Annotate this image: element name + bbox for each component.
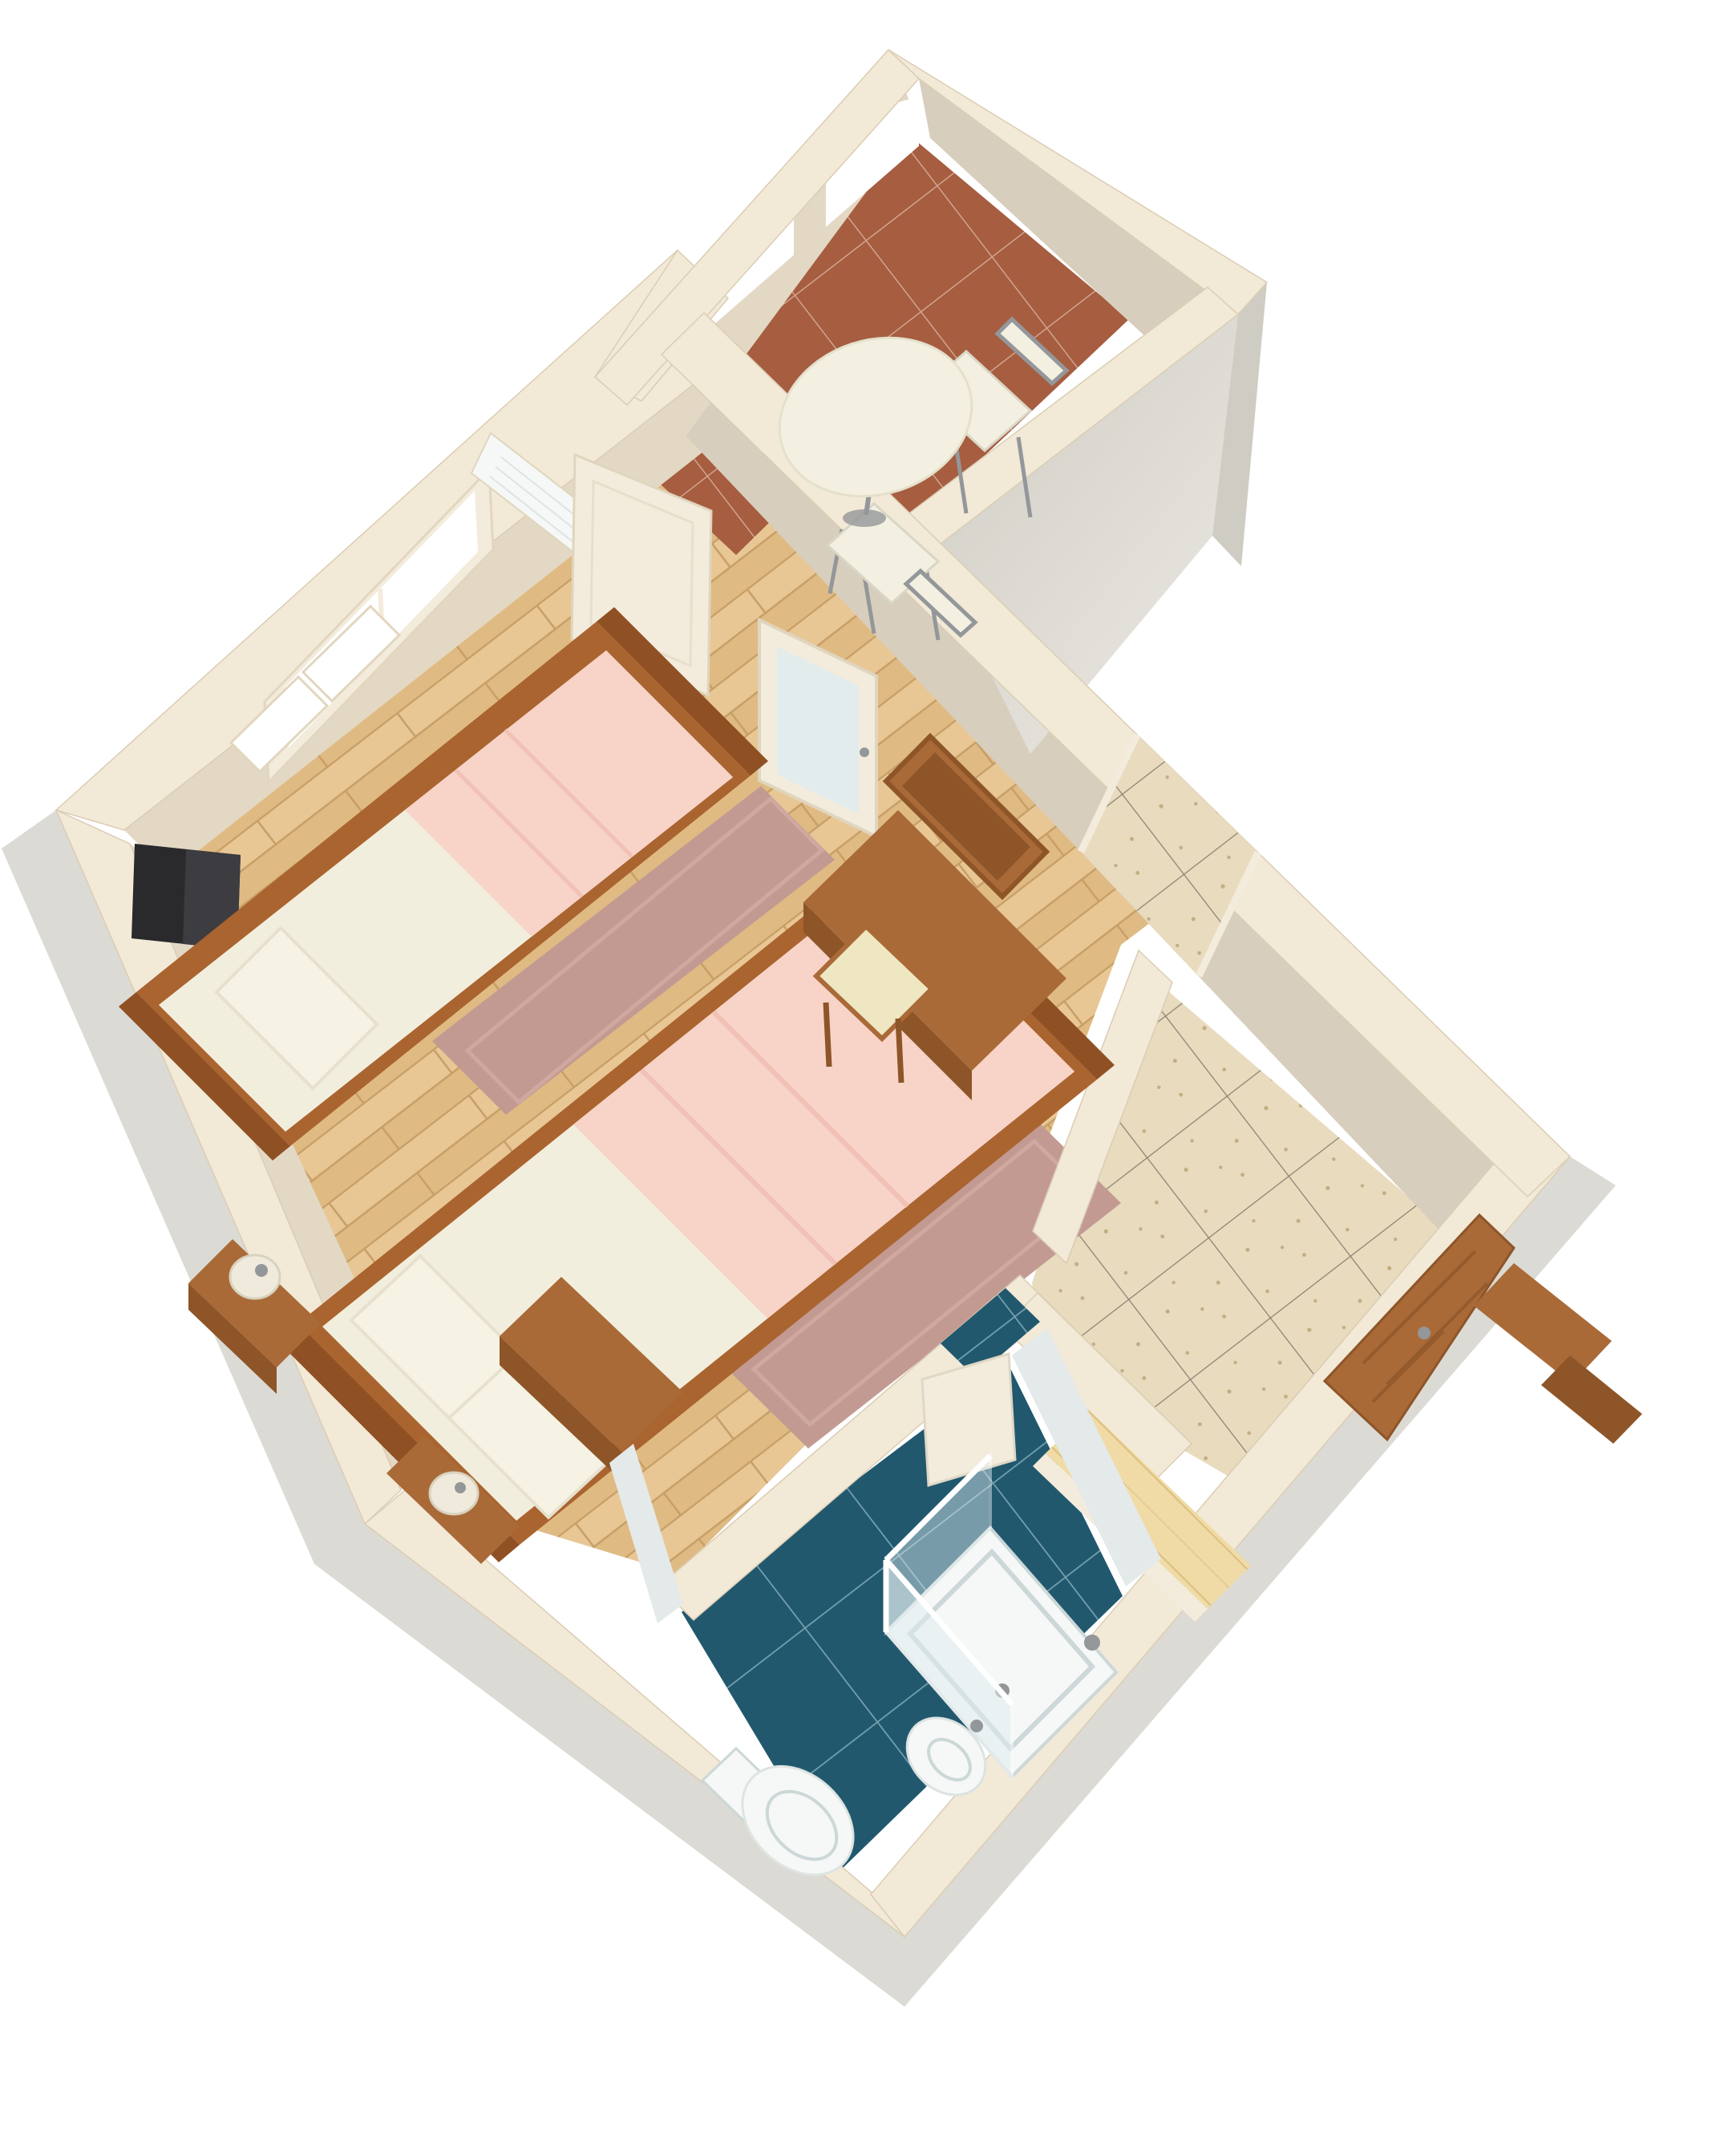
shower-fixture: [1084, 1635, 1100, 1651]
bidet-tap: [970, 1720, 983, 1732]
foot-lamp: [430, 1473, 478, 1514]
entry-door-handle: [1418, 1327, 1430, 1339]
dining-table-base: [843, 509, 886, 527]
glass-door-handle: [860, 747, 869, 757]
floor-plan-canvas: [0, 0, 1736, 2139]
foot-lamp-top: [455, 1482, 466, 1493]
floor-plan-render: [0, 0, 1736, 2139]
nightstand-lamp-top: [255, 1264, 268, 1277]
nightstand-lamp: [230, 1255, 280, 1298]
